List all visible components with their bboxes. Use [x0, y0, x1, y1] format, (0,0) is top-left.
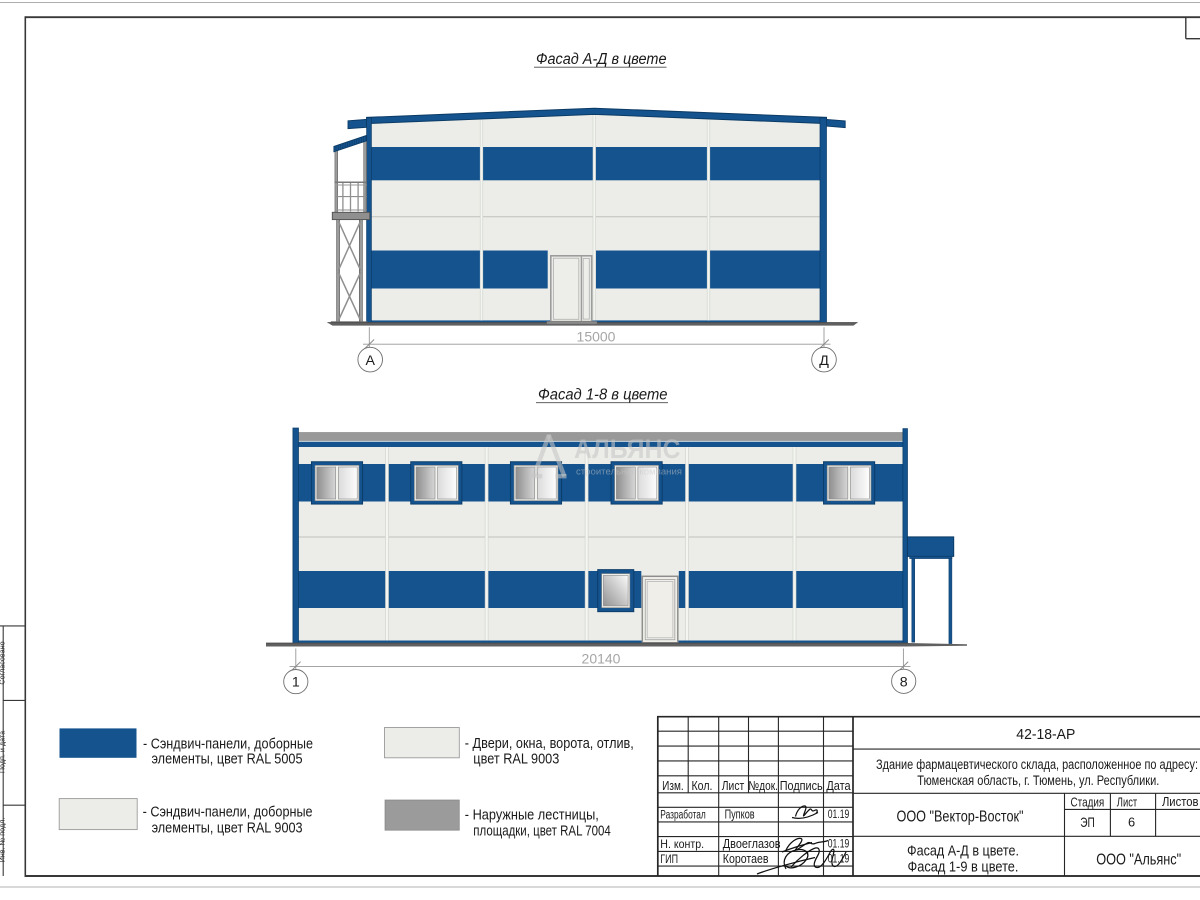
svg-text:цвет RAL 9003: цвет RAL 9003 — [473, 751, 559, 768]
svg-text:Фасад 1-8 в цвете: Фасад 1-8 в цвете — [538, 386, 668, 403]
svg-text:Фасад А-Д в цвете: Фасад А-Д в цвете — [536, 51, 667, 68]
svg-text:1: 1 — [292, 675, 300, 691]
svg-text:Инв. № подл.: Инв. № подл. — [0, 818, 7, 863]
svg-text:Подп. и дата: Подп. и дата — [0, 731, 7, 773]
svg-text:Фасад 1-9 в цвете.: Фасад 1-9 в цвете. — [908, 859, 1019, 876]
svg-text:Лист: Лист — [722, 778, 744, 793]
svg-text:элементы, цвет RAL 5005: элементы, цвет RAL 5005 — [152, 751, 303, 768]
svg-text:ГИП: ГИП — [660, 852, 678, 866]
svg-text:20140: 20140 — [582, 650, 621, 666]
svg-text:ЭП: ЭП — [1080, 814, 1095, 830]
svg-text:строительная компания: строительная компания — [576, 467, 682, 477]
svg-text:Д: Д — [819, 353, 829, 369]
svg-text:6: 6 — [1128, 814, 1135, 829]
svg-text:01.19: 01.19 — [828, 837, 850, 851]
svg-text:Лист: Лист — [1117, 794, 1137, 809]
svg-text:площадки, цвет RAL 7004: площадки, цвет RAL 7004 — [473, 822, 611, 839]
svg-text:Коротаев: Коротаев — [723, 852, 769, 866]
svg-text:Дата: Дата — [826, 778, 851, 793]
svg-text:Н. контр.: Н. контр. — [660, 837, 704, 851]
svg-text:А: А — [365, 353, 375, 369]
svg-text:Стадия: Стадия — [1071, 794, 1105, 809]
svg-text:42-18-АР: 42-18-АР — [1016, 726, 1075, 743]
svg-text:Согласовано: Согласовано — [0, 641, 7, 684]
svg-text:01.19: 01.19 — [828, 807, 850, 821]
svg-text:Изм.: Изм. — [662, 778, 684, 793]
svg-text:Пупков: Пупков — [725, 807, 755, 821]
svg-text:- Двери, окна, ворота, отлив,: - Двери, окна, ворота, отлив, — [465, 735, 634, 752]
svg-text:ООО "Альянс": ООО "Альянс" — [1096, 852, 1181, 869]
svg-text:ООО "Вектор-Восток": ООО "Вектор-Восток" — [897, 808, 1024, 825]
svg-text:Тюменская область, г. Тюмень,: Тюменская область, г. Тюмень, ул. Респуб… — [917, 773, 1159, 788]
svg-text:Разработал: Разработал — [660, 809, 706, 821]
svg-text:АЛЬЯНС: АЛЬЯНС — [574, 434, 681, 464]
svg-text:№док.: №док. — [749, 778, 778, 793]
svg-text:Листов: Листов — [1162, 794, 1199, 809]
svg-text:Здание фармацевтического склад: Здание фармацевтического склада, располо… — [876, 757, 1198, 772]
svg-text:- Наружные лестницы,: - Наружные лестницы, — [465, 807, 599, 824]
svg-text:элементы, цвет RAL 9003: элементы, цвет RAL 9003 — [152, 820, 303, 837]
svg-text:15000: 15000 — [577, 328, 616, 344]
svg-text:8: 8 — [900, 674, 908, 690]
svg-text:Фасад А-Д в цвете.: Фасад А-Д в цвете. — [907, 843, 1019, 860]
svg-text:Кол.: Кол. — [692, 778, 713, 793]
svg-text:Подпись: Подпись — [780, 778, 823, 793]
svg-text:Двоеглазов: Двоеглазов — [723, 837, 781, 851]
svg-text:- Сэндвич-панели, доборные: - Сэндвич-панели, доборные — [143, 804, 313, 821]
